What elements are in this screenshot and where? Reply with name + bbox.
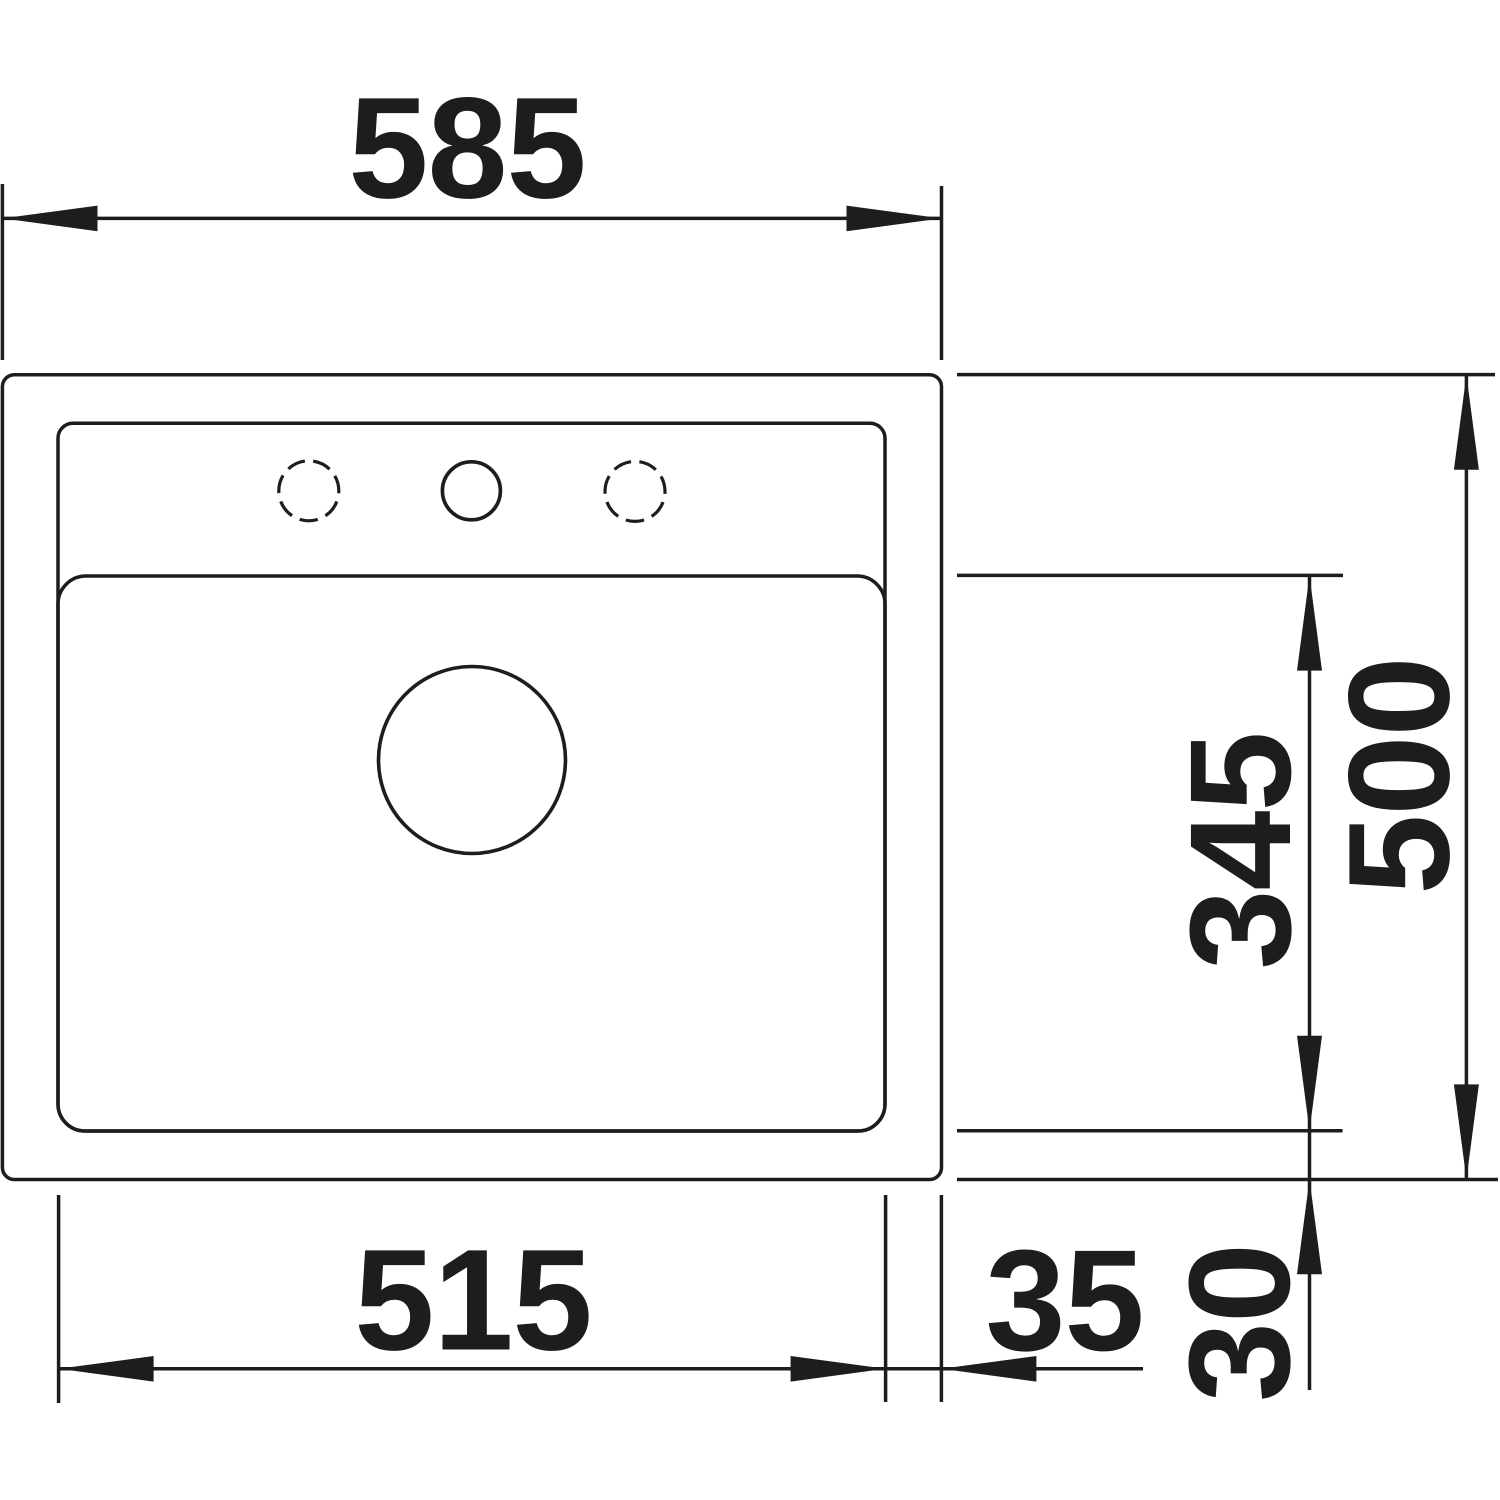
svg-text:500: 500 bbox=[1319, 657, 1480, 894]
svg-text:345: 345 bbox=[1160, 732, 1321, 969]
svg-text:515: 515 bbox=[354, 1220, 591, 1381]
svg-text:35: 35 bbox=[985, 1220, 1143, 1381]
svg-text:585: 585 bbox=[348, 68, 585, 229]
svg-text:30: 30 bbox=[1159, 1244, 1320, 1402]
